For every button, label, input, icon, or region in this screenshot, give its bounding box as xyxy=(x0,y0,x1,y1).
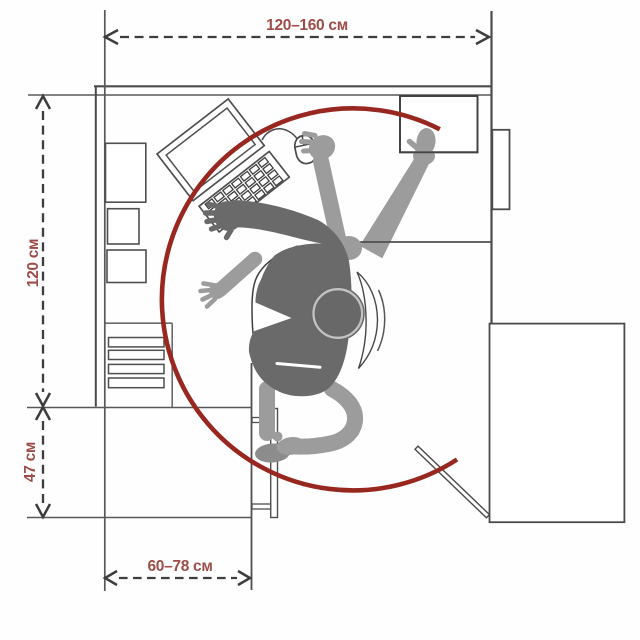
svg-text:120–160 см: 120–160 см xyxy=(266,17,348,34)
svg-text:47 см: 47 см xyxy=(22,442,39,482)
svg-text:60–78 см: 60–78 см xyxy=(147,558,212,575)
svg-text:120 см: 120 см xyxy=(25,239,42,287)
